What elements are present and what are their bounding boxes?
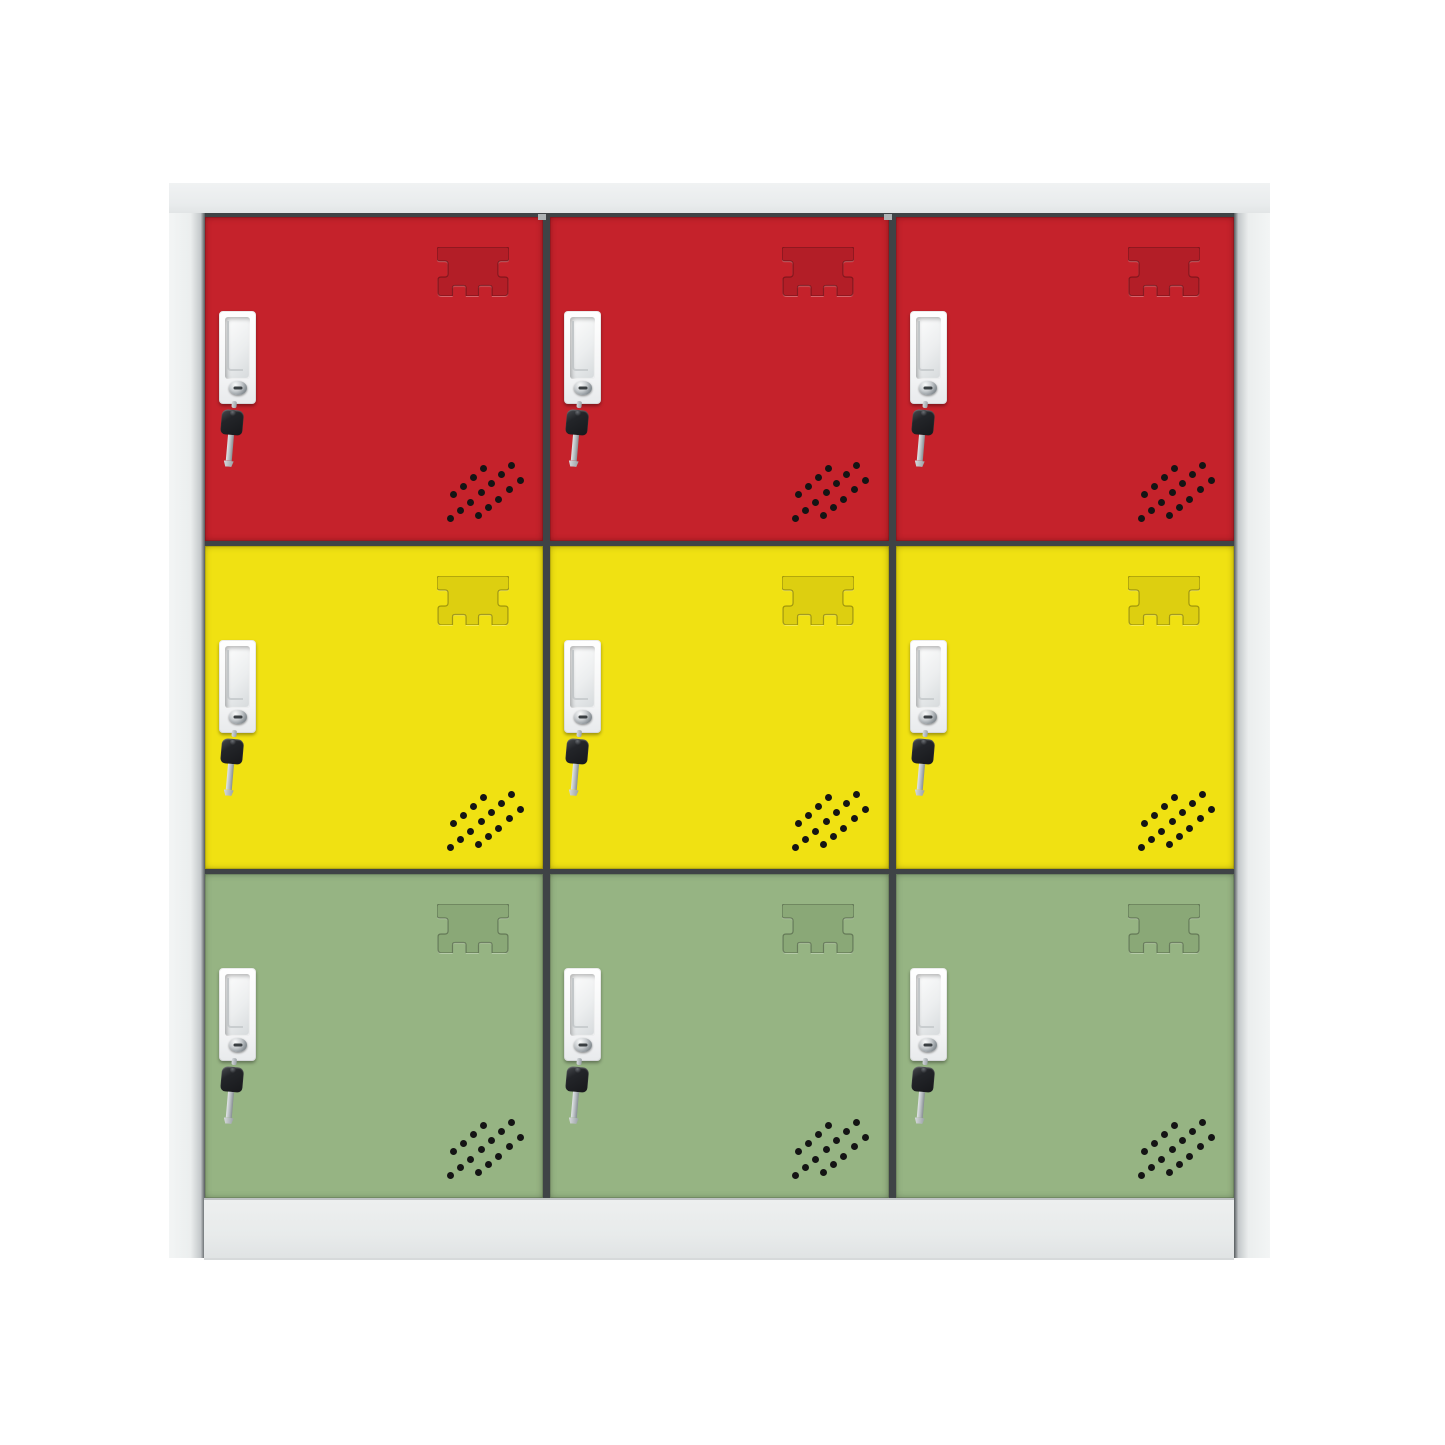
vent-dot bbox=[833, 480, 840, 487]
vent-dot bbox=[862, 1134, 869, 1141]
vent-dot bbox=[447, 515, 454, 522]
lock-cylinder bbox=[574, 710, 592, 724]
vent-holes bbox=[1130, 782, 1220, 856]
key-link bbox=[576, 729, 582, 736]
vent-dot bbox=[825, 1122, 832, 1129]
key-shaft bbox=[916, 1092, 924, 1118]
vent-dot bbox=[485, 833, 492, 840]
vent-dot bbox=[795, 491, 802, 498]
vent-dot bbox=[467, 1156, 474, 1163]
vent-dot bbox=[823, 1146, 830, 1153]
vent-dot bbox=[460, 812, 467, 819]
vent-dot bbox=[470, 803, 477, 810]
vent-dot bbox=[457, 507, 464, 514]
vent-dot bbox=[508, 1119, 515, 1126]
vent-dot bbox=[447, 1172, 454, 1179]
vent-dot bbox=[823, 818, 830, 825]
vent-dot bbox=[1189, 471, 1196, 478]
locker-door-middle-left bbox=[205, 546, 543, 870]
vent-dot bbox=[508, 462, 515, 469]
door-handle bbox=[219, 640, 256, 733]
vent-dot bbox=[815, 1131, 822, 1138]
vent-dot bbox=[825, 794, 832, 801]
key-head bbox=[565, 1066, 589, 1093]
vent-dot bbox=[1138, 515, 1145, 522]
key-head bbox=[911, 1066, 935, 1093]
keyhole bbox=[233, 387, 242, 390]
vent-dot bbox=[460, 1140, 467, 1147]
vent-dot bbox=[517, 477, 524, 484]
vent-dot bbox=[1158, 499, 1165, 506]
vent-dot bbox=[1169, 489, 1176, 496]
door-handle bbox=[910, 311, 947, 404]
handle-pull-lip bbox=[572, 978, 588, 1028]
vent-dot bbox=[488, 480, 495, 487]
vent-dot bbox=[851, 1143, 858, 1150]
vent-dot bbox=[495, 1153, 502, 1160]
vent-dot bbox=[1171, 794, 1178, 801]
vent-dot bbox=[1208, 1134, 1215, 1141]
handle-pull-lip bbox=[918, 321, 934, 371]
key-tip bbox=[569, 789, 579, 796]
handle-recess-slot bbox=[570, 974, 595, 1036]
vent-dot bbox=[467, 828, 474, 835]
vent-dot bbox=[450, 820, 457, 827]
locker-door-middle-right bbox=[896, 546, 1234, 870]
vent-dot bbox=[478, 489, 485, 496]
vent-dot bbox=[1171, 1122, 1178, 1129]
cabinet-plinth bbox=[204, 1198, 1234, 1260]
key-link bbox=[231, 1058, 237, 1065]
lock-cylinder bbox=[919, 1038, 937, 1052]
lock-cylinder bbox=[919, 381, 937, 395]
handle-recess-slot bbox=[570, 646, 595, 708]
key-link bbox=[576, 401, 582, 408]
vent-dot bbox=[498, 471, 505, 478]
key-tip bbox=[914, 1118, 924, 1125]
keyhole bbox=[233, 715, 242, 718]
vent-dot bbox=[1208, 806, 1215, 813]
vent-dot bbox=[1169, 818, 1176, 825]
vent-dot bbox=[851, 815, 858, 822]
vent-dot bbox=[1148, 1164, 1155, 1171]
vent-dot bbox=[1158, 828, 1165, 835]
vent-dot bbox=[815, 803, 822, 810]
vent-dot bbox=[457, 1164, 464, 1171]
key-tip bbox=[914, 460, 924, 467]
locker-door-bottom-left bbox=[205, 874, 543, 1198]
key-link bbox=[922, 729, 928, 736]
vent-dot bbox=[820, 841, 827, 848]
vent-dot bbox=[1141, 1148, 1148, 1155]
key-tip bbox=[569, 1118, 579, 1125]
vent-dot bbox=[480, 465, 487, 472]
vent-dot bbox=[833, 809, 840, 816]
vent-dot bbox=[1176, 1161, 1183, 1168]
vent-dot bbox=[1141, 491, 1148, 498]
vent-dot bbox=[833, 1137, 840, 1144]
vent-dot bbox=[840, 1153, 847, 1160]
vent-dot bbox=[517, 806, 524, 813]
locker-door-top-left bbox=[205, 217, 543, 541]
vent-dot bbox=[475, 841, 482, 848]
vent-dot bbox=[823, 489, 830, 496]
vent-dot bbox=[1208, 477, 1215, 484]
vent-dot bbox=[802, 1164, 809, 1171]
vent-dot bbox=[1199, 791, 1206, 798]
vent-dot bbox=[805, 483, 812, 490]
vent-dot bbox=[506, 1143, 513, 1150]
vent-dot bbox=[480, 1122, 487, 1129]
key-head bbox=[911, 409, 935, 436]
vent-dot bbox=[830, 504, 837, 511]
key-head bbox=[220, 738, 244, 765]
vent-dot bbox=[795, 820, 802, 827]
door-key bbox=[907, 729, 937, 797]
cabinet-side-frame-left bbox=[169, 213, 205, 1258]
door-emboss-stamp bbox=[437, 576, 509, 625]
vent-dot bbox=[1197, 815, 1204, 822]
vent-dot bbox=[853, 791, 860, 798]
handle-pull-lip bbox=[227, 650, 243, 700]
door-key bbox=[907, 1057, 937, 1125]
vent-dot bbox=[802, 836, 809, 843]
vent-dot bbox=[802, 507, 809, 514]
vent-dot bbox=[1161, 474, 1168, 481]
handle-recess-slot bbox=[916, 974, 941, 1036]
lock-cylinder bbox=[229, 1038, 247, 1052]
vent-holes bbox=[439, 453, 529, 527]
vent-holes bbox=[784, 782, 874, 856]
key-tip bbox=[569, 460, 579, 467]
vent-dot bbox=[843, 1128, 850, 1135]
hinge-tab bbox=[538, 214, 546, 220]
vent-dot bbox=[805, 1140, 812, 1147]
key-link bbox=[576, 1058, 582, 1065]
vent-dot bbox=[792, 515, 799, 522]
vent-dot bbox=[488, 809, 495, 816]
handle-recess-slot bbox=[225, 317, 250, 379]
vent-dot bbox=[840, 496, 847, 503]
handle-pull-lip bbox=[572, 321, 588, 371]
vent-dot bbox=[478, 818, 485, 825]
door-handle bbox=[564, 968, 601, 1061]
door-key bbox=[907, 400, 937, 468]
lock-cylinder bbox=[574, 381, 592, 395]
handle-pull-lip bbox=[227, 321, 243, 371]
vent-dot bbox=[843, 800, 850, 807]
handle-recess-slot bbox=[570, 317, 595, 379]
keyhole bbox=[578, 715, 587, 718]
vent-holes bbox=[1130, 453, 1220, 527]
door-key bbox=[562, 400, 592, 468]
vent-dot bbox=[1197, 486, 1204, 493]
vent-dot bbox=[1197, 1143, 1204, 1150]
vent-dot bbox=[470, 474, 477, 481]
vent-dot bbox=[792, 844, 799, 851]
door-key bbox=[562, 729, 592, 797]
keyhole bbox=[578, 387, 587, 390]
vent-dot bbox=[843, 471, 850, 478]
vent-dot bbox=[475, 512, 482, 519]
vent-holes bbox=[1130, 1110, 1220, 1184]
vent-holes bbox=[784, 1110, 874, 1184]
locker-door-middle-center bbox=[550, 546, 888, 870]
vent-dot bbox=[450, 491, 457, 498]
locker-cabinet bbox=[0, 0, 1445, 1445]
key-link bbox=[922, 1058, 928, 1065]
locker-door-top-center bbox=[550, 217, 888, 541]
door-handle bbox=[910, 968, 947, 1061]
vent-dot bbox=[470, 1131, 477, 1138]
vent-dot bbox=[460, 483, 467, 490]
vent-dot bbox=[825, 465, 832, 472]
vent-dot bbox=[815, 474, 822, 481]
vent-dot bbox=[1151, 483, 1158, 490]
door-handle bbox=[910, 640, 947, 733]
vent-dot bbox=[862, 806, 869, 813]
vent-dot bbox=[506, 486, 513, 493]
door-emboss-stamp bbox=[1128, 904, 1200, 953]
vent-dot bbox=[820, 512, 827, 519]
key-shaft bbox=[571, 435, 579, 461]
handle-pull-lip bbox=[918, 978, 934, 1028]
door-emboss-stamp bbox=[782, 247, 854, 296]
vent-dot bbox=[1186, 825, 1193, 832]
door-handle bbox=[564, 640, 601, 733]
keyhole bbox=[924, 715, 933, 718]
door-key bbox=[216, 729, 246, 797]
key-link bbox=[231, 729, 237, 736]
door-key bbox=[562, 1057, 592, 1125]
vent-holes bbox=[439, 1110, 529, 1184]
vent-dot bbox=[495, 496, 502, 503]
cabinet-side-frame-right bbox=[1234, 213, 1270, 1258]
key-link bbox=[231, 401, 237, 408]
lock-cylinder bbox=[229, 381, 247, 395]
door-emboss-stamp bbox=[437, 904, 509, 953]
vent-dot bbox=[1141, 820, 1148, 827]
vent-dot bbox=[1166, 512, 1173, 519]
vent-dot bbox=[498, 1128, 505, 1135]
vent-dot bbox=[853, 462, 860, 469]
key-shaft bbox=[571, 763, 579, 789]
vent-dot bbox=[1186, 496, 1193, 503]
handle-pull-lip bbox=[572, 650, 588, 700]
product-photo-stage bbox=[0, 0, 1445, 1445]
key-shaft bbox=[226, 435, 234, 461]
vent-dot bbox=[795, 1148, 802, 1155]
vent-dot bbox=[478, 1146, 485, 1153]
door-key bbox=[216, 1057, 246, 1125]
vent-dot bbox=[1148, 507, 1155, 514]
vent-dot bbox=[508, 791, 515, 798]
door-emboss-stamp bbox=[1128, 576, 1200, 625]
vent-dot bbox=[820, 1169, 827, 1176]
key-head bbox=[565, 409, 589, 436]
door-handle bbox=[219, 311, 256, 404]
vent-dot bbox=[1171, 465, 1178, 472]
vent-dot bbox=[1199, 462, 1206, 469]
key-shaft bbox=[916, 763, 924, 789]
vent-dot bbox=[1161, 803, 1168, 810]
cabinet-top-panel bbox=[169, 183, 1270, 215]
vent-dot bbox=[1148, 836, 1155, 843]
vent-dot bbox=[1176, 504, 1183, 511]
handle-recess-slot bbox=[225, 974, 250, 1036]
vent-dot bbox=[1169, 1146, 1176, 1153]
vent-dot bbox=[498, 800, 505, 807]
key-tip bbox=[223, 1118, 233, 1125]
lock-cylinder bbox=[919, 710, 937, 724]
vent-dot bbox=[488, 1137, 495, 1144]
vent-dot bbox=[853, 1119, 860, 1126]
keyhole bbox=[233, 1044, 242, 1047]
vent-dot bbox=[1161, 1131, 1168, 1138]
vent-dot bbox=[447, 844, 454, 851]
keyhole bbox=[924, 387, 933, 390]
key-shaft bbox=[226, 763, 234, 789]
vent-dot bbox=[480, 794, 487, 801]
key-link bbox=[922, 401, 928, 408]
vent-dot bbox=[1166, 841, 1173, 848]
vent-dot bbox=[457, 836, 464, 843]
vent-dot bbox=[812, 828, 819, 835]
doors-grid bbox=[205, 213, 1234, 1198]
vent-dot bbox=[485, 1161, 492, 1168]
vent-dot bbox=[506, 815, 513, 822]
key-head bbox=[911, 738, 935, 765]
vent-dot bbox=[805, 812, 812, 819]
door-emboss-stamp bbox=[1128, 247, 1200, 296]
key-tip bbox=[223, 789, 233, 796]
door-handle bbox=[564, 311, 601, 404]
vent-dot bbox=[1186, 1153, 1193, 1160]
locker-door-top-right bbox=[896, 217, 1234, 541]
vent-dot bbox=[517, 1134, 524, 1141]
vent-dot bbox=[1189, 800, 1196, 807]
vent-dot bbox=[1158, 1156, 1165, 1163]
door-emboss-stamp bbox=[437, 247, 509, 296]
hinge-tab bbox=[884, 214, 892, 220]
vent-dot bbox=[840, 825, 847, 832]
vent-dot bbox=[1199, 1119, 1206, 1126]
vent-dot bbox=[812, 1156, 819, 1163]
lock-cylinder bbox=[229, 710, 247, 724]
vent-dot bbox=[1151, 1140, 1158, 1147]
vent-dot bbox=[812, 499, 819, 506]
vent-dot bbox=[475, 1169, 482, 1176]
vent-dot bbox=[450, 1148, 457, 1155]
vent-dot bbox=[1138, 1172, 1145, 1179]
vent-dot bbox=[467, 499, 474, 506]
door-handle bbox=[219, 968, 256, 1061]
key-shaft bbox=[916, 435, 924, 461]
handle-pull-lip bbox=[918, 650, 934, 700]
lock-cylinder bbox=[574, 1038, 592, 1052]
key-head bbox=[220, 409, 244, 436]
key-shaft bbox=[571, 1092, 579, 1118]
vent-dot bbox=[1189, 1128, 1196, 1135]
door-emboss-stamp bbox=[782, 576, 854, 625]
vent-dot bbox=[1179, 1137, 1186, 1144]
vent-dot bbox=[862, 477, 869, 484]
handle-pull-lip bbox=[227, 978, 243, 1028]
vent-dot bbox=[1176, 833, 1183, 840]
handle-recess-slot bbox=[916, 646, 941, 708]
vent-dot bbox=[495, 825, 502, 832]
vent-dot bbox=[1179, 809, 1186, 816]
vent-dot bbox=[485, 504, 492, 511]
keyhole bbox=[924, 1044, 933, 1047]
locker-door-bottom-right bbox=[896, 874, 1234, 1198]
vent-dot bbox=[851, 486, 858, 493]
vent-dot bbox=[1166, 1169, 1173, 1176]
door-emboss-stamp bbox=[782, 904, 854, 953]
vent-dot bbox=[830, 1161, 837, 1168]
locker-door-bottom-center bbox=[550, 874, 888, 1198]
vent-dot bbox=[1138, 844, 1145, 851]
door-key bbox=[216, 400, 246, 468]
key-head bbox=[565, 738, 589, 765]
key-shaft bbox=[226, 1092, 234, 1118]
handle-recess-slot bbox=[916, 317, 941, 379]
vent-holes bbox=[439, 782, 529, 856]
vent-dot bbox=[1151, 812, 1158, 819]
key-head bbox=[220, 1066, 244, 1093]
vent-dot bbox=[830, 833, 837, 840]
handle-recess-slot bbox=[225, 646, 250, 708]
keyhole bbox=[578, 1044, 587, 1047]
key-tip bbox=[223, 460, 233, 467]
vent-dot bbox=[792, 1172, 799, 1179]
vent-dot bbox=[1179, 480, 1186, 487]
vent-holes bbox=[784, 453, 874, 527]
key-tip bbox=[914, 789, 924, 796]
